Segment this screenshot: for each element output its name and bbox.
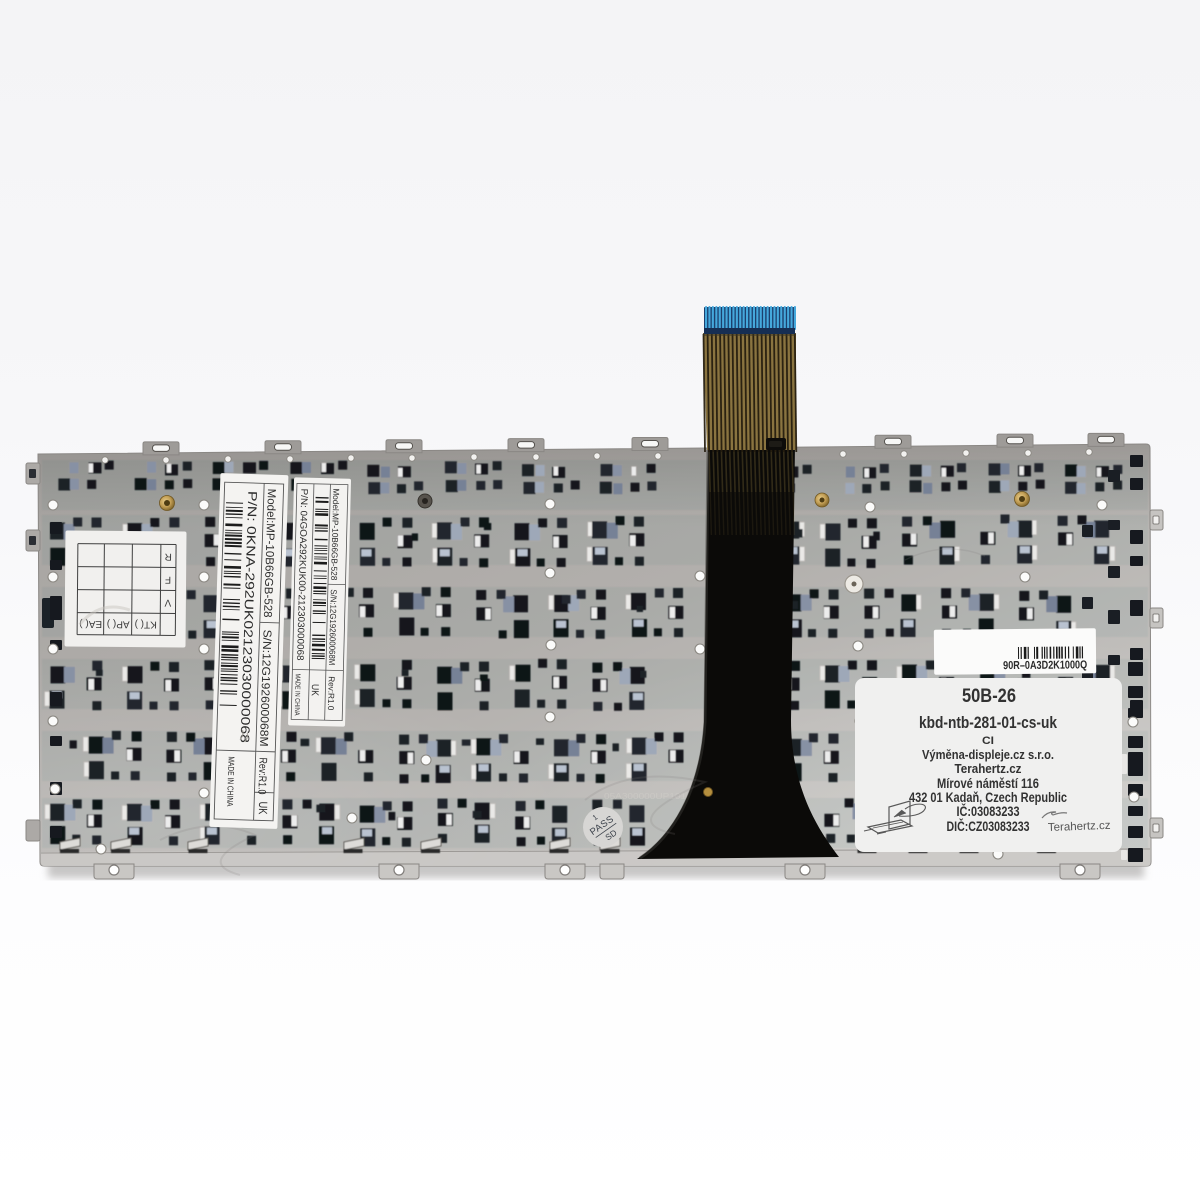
svg-text:Rev:R1.0: Rev:R1.0 (255, 757, 268, 794)
svg-text:Mírové náměstí 116: Mírové náměstí 116 (937, 776, 1039, 791)
svg-text:05A300000UP101: 05A300000UP101 (604, 791, 686, 801)
svg-text:CI: CI (982, 735, 994, 747)
svg-text:Terahertz.cz: Terahertz.cz (1048, 820, 1111, 834)
svg-text:AP( ): AP( ) (107, 618, 130, 629)
svg-text:MADE IN CHINA: MADE IN CHINA (225, 756, 237, 807)
svg-text:MADE IN CHINA: MADE IN CHINA (293, 673, 301, 715)
svg-text:DIČ:CZ03083233: DIČ:CZ03083233 (947, 819, 1030, 834)
svg-text:UK: UK (309, 684, 320, 697)
svg-text:IČ:03083233: IČ:03083233 (957, 804, 1020, 819)
svg-text:F: F (165, 574, 171, 585)
svg-text:90R–0A3D2K1000Q: 90R–0A3D2K1000Q (1003, 659, 1087, 672)
svg-text:50B-26: 50B-26 (962, 686, 1016, 707)
svg-text:432 01 Kadaň, Czech Republic: 432 01 Kadaň, Czech Republic (909, 790, 1067, 805)
svg-text:UK: UK (256, 801, 270, 814)
svg-text:Terahertz.cz: Terahertz.cz (955, 761, 1022, 776)
svg-text:Rev:R1.0: Rev:R1.0 (326, 676, 337, 710)
svg-text:Výměna-displeje.cz s.r.o.: Výměna-displeje.cz s.r.o. (922, 747, 1054, 762)
svg-text:R: R (165, 551, 172, 562)
svg-text:V: V (164, 597, 171, 608)
svg-text:S/N:12G192600068M: S/N:12G192600068M (327, 589, 339, 665)
svg-text:kbd-ntb-281-01-cs-uk: kbd-ntb-281-01-cs-uk (919, 714, 1058, 732)
svg-text:KT( ): KT( ) (135, 618, 157, 629)
